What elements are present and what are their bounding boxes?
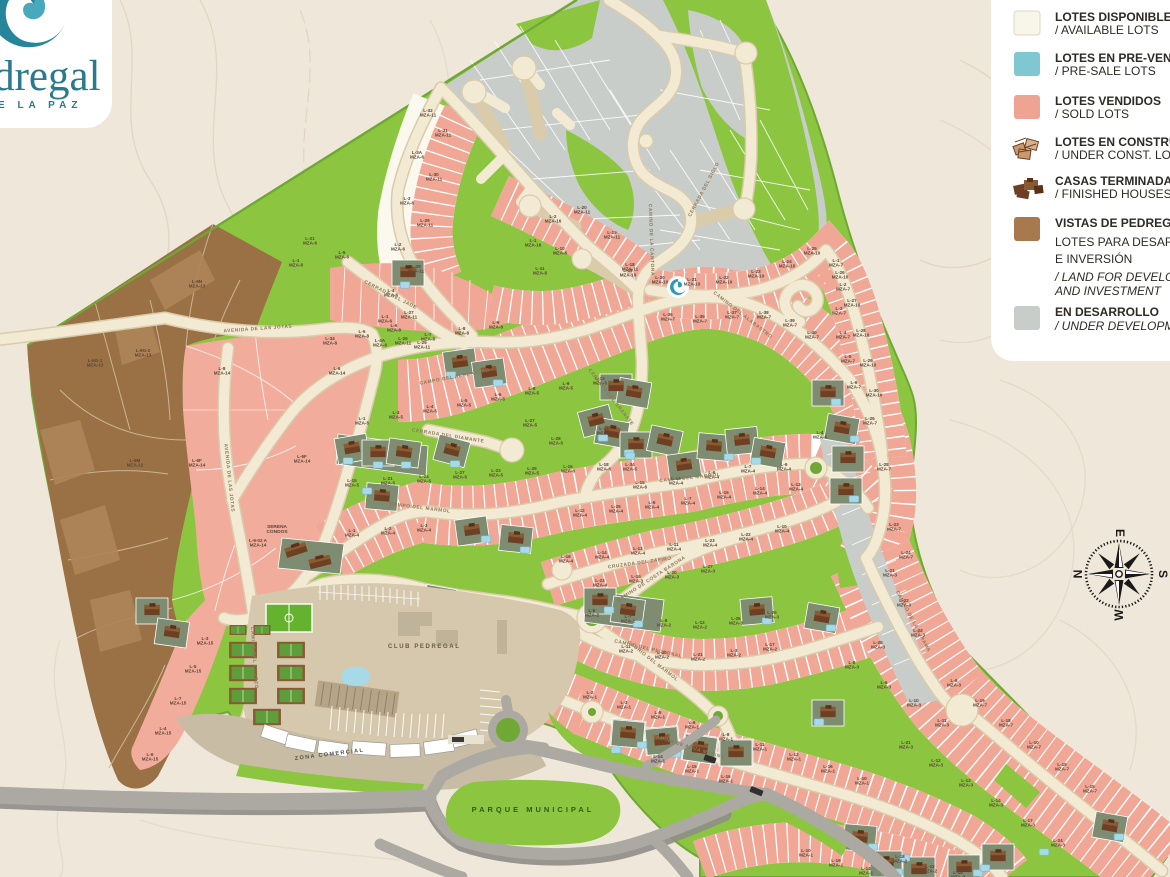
svg-text:/ PRE-SALE LOTS: / PRE-SALE LOTS bbox=[1055, 64, 1156, 78]
svg-text:/ UNDER CONST. LOTS: / UNDER CONST. LOTS bbox=[1055, 148, 1170, 162]
svg-text:CLUB PEDREGAL: CLUB PEDREGAL bbox=[388, 644, 460, 650]
svg-text:L-9G-2MZA-13: L-9G-2MZA-13 bbox=[135, 348, 152, 358]
svg-text:E INVERSIÓN: E INVERSIÓN bbox=[1055, 251, 1132, 266]
svg-text:LOTES EN PRE-VENTA: LOTES EN PRE-VENTA bbox=[1055, 51, 1170, 65]
svg-text:L-9-02 AMZA-14: L-9-02 AMZA-14 bbox=[249, 538, 268, 548]
svg-text:/ UNDER DEVELOPMENT: / UNDER DEVELOPMENT bbox=[1054, 319, 1170, 333]
svg-text:S: S bbox=[1156, 570, 1170, 578]
svg-text:EN DESARROLLO: EN DESARROLLO bbox=[1055, 305, 1159, 319]
svg-text:PARQUE MUNICIPAL: PARQUE MUNICIPAL bbox=[472, 805, 595, 814]
svg-text:LOTES PARA DESARROLLO: LOTES PARA DESARROLLO bbox=[1055, 235, 1170, 249]
svg-text:/ LAND FOR DEVELOPMENT: / LAND FOR DEVELOPMENT bbox=[1054, 270, 1170, 284]
svg-text:/ AVAILABLE LOTS: / AVAILABLE LOTS bbox=[1055, 23, 1159, 37]
svg-text:edregal: edregal bbox=[0, 53, 101, 100]
svg-text:/ SOLD LOTS: / SOLD LOTS bbox=[1055, 107, 1129, 121]
svg-text:LOTES EN CONSTRUCCIÓN: LOTES EN CONSTRUCCIÓN bbox=[1055, 134, 1170, 149]
svg-text:CASAS TERMINADAS: CASAS TERMINADAS bbox=[1055, 174, 1170, 188]
svg-text:SERENACONDOS: SERENACONDOS bbox=[266, 524, 288, 535]
svg-text:/ FINISHED HOUSES: / FINISHED HOUSES bbox=[1055, 187, 1170, 201]
svg-text:N: N bbox=[1071, 570, 1085, 579]
svg-text:E LA PAZ: E LA PAZ bbox=[0, 100, 82, 111]
svg-text:VISTAS DE PEDREGAL: VISTAS DE PEDREGAL bbox=[1055, 216, 1170, 230]
svg-text:E: E bbox=[1113, 529, 1127, 537]
svg-text:AND INVESTMENT: AND INVESTMENT bbox=[1054, 284, 1163, 298]
svg-text:LOTES DISPONIBLES: LOTES DISPONIBLES bbox=[1055, 10, 1170, 24]
svg-text:L-9G-1MZA-13: L-9G-1MZA-13 bbox=[87, 358, 104, 368]
svg-text:W: W bbox=[1112, 609, 1126, 621]
svg-text:LOTES VENDIDOS: LOTES VENDIDOS bbox=[1055, 94, 1161, 108]
